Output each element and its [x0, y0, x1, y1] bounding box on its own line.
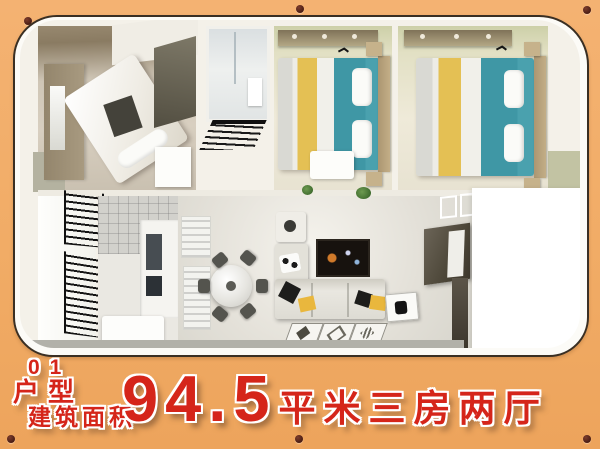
- area-label: 建筑面积: [28, 406, 136, 429]
- dark-artwork: [316, 239, 370, 277]
- bird-decal: [496, 44, 506, 52]
- lamp: [284, 220, 296, 232]
- pet-side-table: [385, 292, 419, 323]
- dining-table: [210, 265, 252, 307]
- screw-bottom-right: [583, 435, 591, 443]
- tv-cabinet: [424, 223, 470, 285]
- area-value: 94.5: [122, 366, 277, 431]
- floorplan-photo: [20, 20, 580, 348]
- bedroom3-headboard: [534, 56, 546, 178]
- bedroom3-bed: [416, 58, 534, 176]
- headline: 94.5 平米三房两厅: [122, 366, 549, 431]
- sofa-seam: [347, 283, 349, 317]
- nightstand: [524, 42, 540, 56]
- poster-root: { "banner": { "unit_number": "01", "unit…: [0, 0, 600, 449]
- bedroom2-headboard: [378, 56, 390, 172]
- hall-desk: [155, 147, 191, 187]
- area-unit-layout: 平米三房两厅: [279, 390, 549, 427]
- pillow: [504, 124, 524, 162]
- floorplan-render: [20, 20, 580, 348]
- screw-top-center: [296, 5, 304, 13]
- wall-radiator: [181, 216, 211, 258]
- pillow: [504, 70, 524, 108]
- tall-cabinet: [452, 278, 468, 348]
- table-centerpiece: [226, 281, 236, 291]
- screw-bottom-left: [7, 435, 15, 443]
- oven: [146, 276, 162, 296]
- right-wall-block: [548, 151, 580, 193]
- plant: [356, 187, 371, 199]
- rug-motif: [360, 326, 374, 340]
- bed-throw-blanket: [103, 95, 142, 137]
- side-table-lamp: [276, 212, 306, 242]
- screw-top-right: [583, 6, 591, 14]
- shower-glass: [234, 32, 236, 84]
- bathroom-floor: [206, 26, 270, 122]
- plant: [302, 185, 313, 195]
- screw-bottom-center: [295, 435, 303, 443]
- wall-radiator: [183, 266, 211, 330]
- unit-number: 01: [28, 357, 71, 378]
- corner-closet: [154, 36, 196, 128]
- black-cat: [395, 301, 408, 315]
- cabinet-door: [447, 230, 465, 278]
- nightstand: [366, 172, 382, 186]
- wall-frame: [440, 195, 457, 219]
- wardrobe-mirror: [50, 86, 65, 150]
- rug-motif: [296, 326, 310, 340]
- pillow: [352, 68, 372, 106]
- white-table: [310, 151, 354, 179]
- cow-print-pillow: [279, 252, 302, 273]
- bottom-outer-wall: [32, 340, 464, 348]
- unit-type-label: 户型: [13, 379, 83, 405]
- dining-chair: [198, 279, 210, 293]
- pillow: [352, 120, 372, 158]
- bedroom2-shelf: [278, 30, 378, 46]
- hatched-window: [199, 120, 266, 150]
- bathroom-sink: [248, 78, 262, 106]
- dining-chair: [256, 279, 268, 293]
- nightstand: [366, 42, 382, 56]
- bird-decal: [338, 46, 348, 54]
- blank-balcony-area: [472, 188, 580, 348]
- floorplan-panel: [13, 15, 589, 357]
- fridge: [146, 234, 162, 270]
